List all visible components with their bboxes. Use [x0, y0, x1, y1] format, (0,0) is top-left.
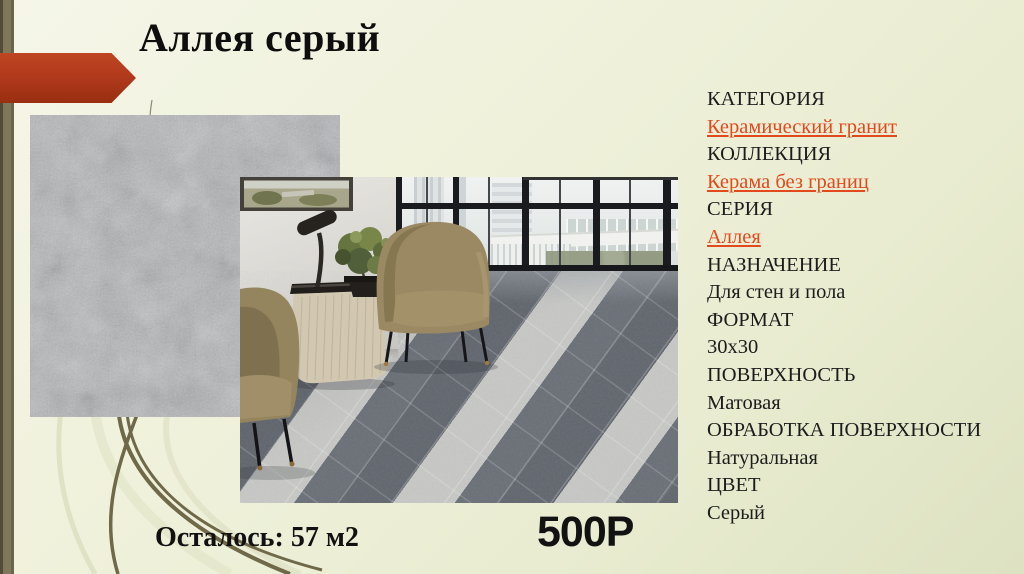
attribute-value-link[interactable]: Керамический гранит [707, 114, 1007, 142]
attribute-row: НАЗНАЧЕНИЕ Для стен и пола [707, 252, 1007, 307]
attribute-label: КАТЕГОРИЯ [707, 86, 1007, 114]
attribute-label: НАЗНАЧЕНИЕ [707, 252, 1007, 280]
attribute-label: ОБРАБОТКА ПОВЕРХНОСТИ [707, 417, 1007, 445]
accent-arrow-banner [0, 53, 136, 103]
attribute-row: ФОРМАТ 30x30 [707, 307, 1007, 362]
attribute-value-link[interactable]: Аллея [707, 224, 1007, 252]
attribute-label: ФОРМАТ [707, 307, 1007, 335]
attribute-row: СЕРИЯ Аллея [707, 196, 1007, 251]
attribute-label: КОЛЛЕКЦИЯ [707, 141, 1007, 169]
attribute-row: ПОВЕРХНОСТЬ Матовая [707, 362, 1007, 417]
attribute-list: КАТЕГОРИЯ Керамический гранит КОЛЛЕКЦИЯ … [707, 86, 1007, 528]
attribute-value: Натуральная [707, 445, 1007, 473]
page-title: Аллея серый [139, 14, 380, 61]
wall-picture-frame [240, 177, 353, 211]
slide-canvas: Аллея серый [0, 0, 1024, 574]
photo-furniture [240, 177, 678, 503]
price: 500Р [537, 508, 633, 557]
attribute-row: КОЛЛЕКЦИЯ Керама без границ [707, 141, 1007, 196]
attribute-value: 30x30 [707, 334, 1007, 362]
stock-remaining: Осталось: 57 м2 [155, 522, 359, 554]
attribute-row: ЦВЕТ Серый [707, 472, 1007, 527]
attribute-label: СЕРИЯ [707, 196, 1007, 224]
attribute-value: Матовая [707, 390, 1007, 418]
attribute-row: ОБРАБОТКА ПОВЕРХНОСТИ Натуральная [707, 417, 1007, 472]
attribute-value: Для стен и пола [707, 279, 1007, 307]
attribute-row: КАТЕГОРИЯ Керамический гранит [707, 86, 1007, 141]
attribute-value-link[interactable]: Керама без границ [707, 169, 1007, 197]
attribute-value: Серый [707, 500, 1007, 528]
attribute-label: ПОВЕРХНОСТЬ [707, 362, 1007, 390]
interior-photo [240, 177, 678, 503]
attribute-label: ЦВЕТ [707, 472, 1007, 500]
